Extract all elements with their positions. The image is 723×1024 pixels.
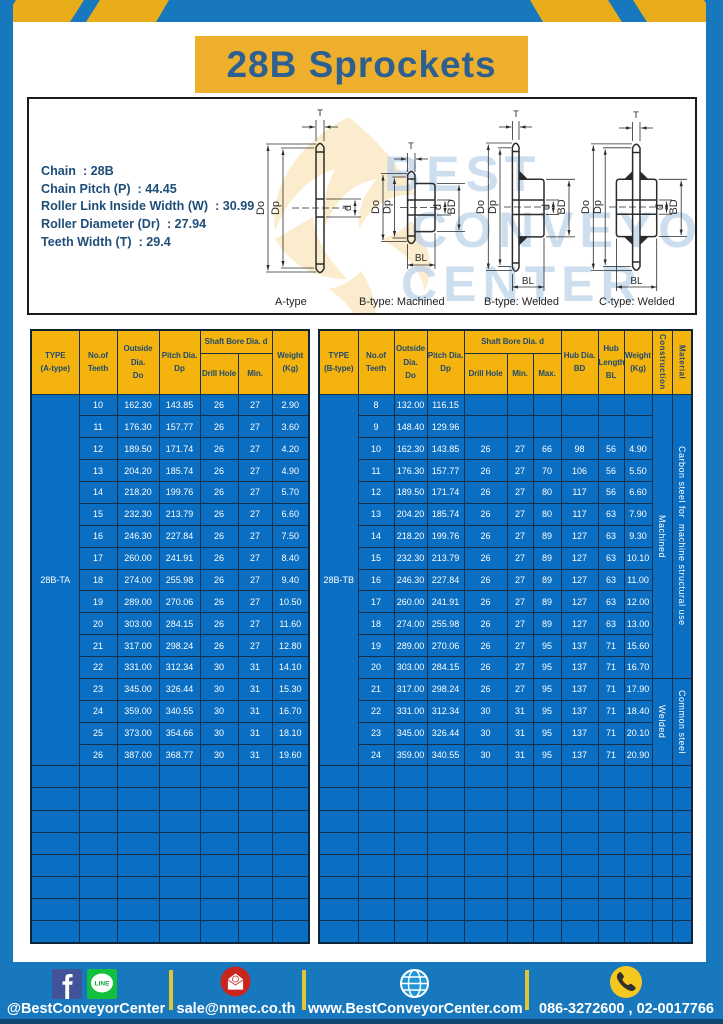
svg-text:BL: BL bbox=[522, 276, 535, 287]
svg-text:T: T bbox=[317, 108, 323, 119]
svg-text:Do: Do bbox=[370, 200, 382, 214]
svg-text:d: d bbox=[541, 204, 553, 210]
svg-text:BL: BL bbox=[630, 276, 643, 287]
svg-text:Do: Do bbox=[255, 201, 267, 215]
svg-text:T: T bbox=[408, 141, 414, 152]
svg-text:T: T bbox=[513, 109, 519, 120]
svg-text:Dp: Dp bbox=[592, 200, 604, 214]
svg-text:T: T bbox=[633, 110, 639, 121]
svg-text:d: d bbox=[654, 204, 666, 210]
svg-text:Dp: Dp bbox=[487, 200, 499, 214]
svg-text:Do: Do bbox=[475, 200, 487, 214]
svg-text:BD: BD bbox=[556, 199, 568, 214]
svg-text:BD: BD bbox=[446, 199, 458, 214]
svg-text:LINE: LINE bbox=[95, 981, 110, 988]
svg-text:Do: Do bbox=[580, 200, 592, 214]
svg-text:BL: BL bbox=[415, 253, 428, 264]
svg-text:Dp: Dp bbox=[382, 200, 394, 214]
svg-text:Dp: Dp bbox=[270, 201, 282, 215]
svg-text:d: d bbox=[342, 205, 354, 211]
svg-text:BD: BD bbox=[668, 199, 680, 214]
svg-text:d: d bbox=[432, 204, 444, 210]
